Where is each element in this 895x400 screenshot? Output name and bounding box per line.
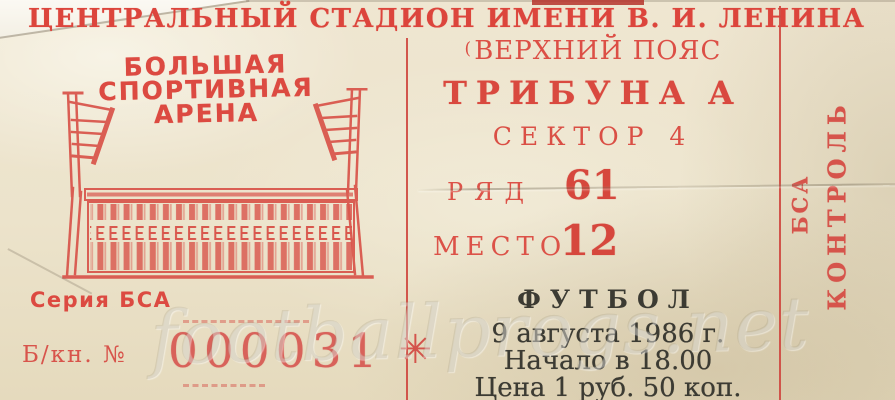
seat-value: 12 — [560, 216, 618, 265]
stand-line: ТРИБУНАА — [407, 74, 779, 112]
row-label: РЯД — [447, 178, 535, 206]
event-time: Начало в 18.00 — [422, 348, 794, 375]
tier-label: ВЕРХНИЙ ПОЯС — [474, 36, 721, 66]
stadium-illustration — [42, 88, 394, 294]
stand-label: ТРИБУНА — [443, 74, 694, 112]
booklet-number-label: Б/кн. № — [22, 342, 127, 368]
tier-line: (ВЕРХНИЙ ПОЯС — [407, 36, 779, 66]
sector-line: СЕКТОР4 — [407, 122, 779, 151]
stadium-name-header: ЦЕНТРАЛЬНЫЙ СТАДИОН ИМЕНИ В. И. ЛЕНИНА — [28, 4, 752, 34]
sector-label: СЕКТОР — [493, 122, 652, 151]
ticket-number-row: 000031 ✳ — [168, 324, 432, 379]
ticket-number: 000031 — [168, 324, 383, 379]
event-block: ФУТБОЛ 9 августа 1986 г. Начало в 18.00 … — [422, 285, 794, 400]
event-price: Цена 1 руб. 50 коп. — [422, 375, 794, 400]
stand-value: А — [708, 74, 743, 112]
series-label: Серия БСА — [30, 288, 171, 312]
event-date: 9 августа 1986 г. — [422, 321, 794, 348]
seat-label: МЕСТО — [433, 232, 567, 262]
stub-control-vertical: КОНТРОЛЬ — [823, 99, 852, 310]
number-guide-dashes-top — [183, 320, 309, 323]
number-guide-dashes-bottom — [183, 384, 265, 387]
sector-value: 4 — [669, 122, 693, 151]
tier-prefix-mark: ( — [465, 39, 473, 59]
ticket-scan: ЦЕНТРАЛЬНЫЙ СТАДИОН ИМЕНИ В. И. ЛЕНИНА Б… — [0, 0, 895, 400]
stub-series-vertical: БСА — [788, 174, 813, 235]
event-sport: ФУТБОЛ — [422, 285, 794, 314]
row-value: 61 — [564, 162, 620, 209]
